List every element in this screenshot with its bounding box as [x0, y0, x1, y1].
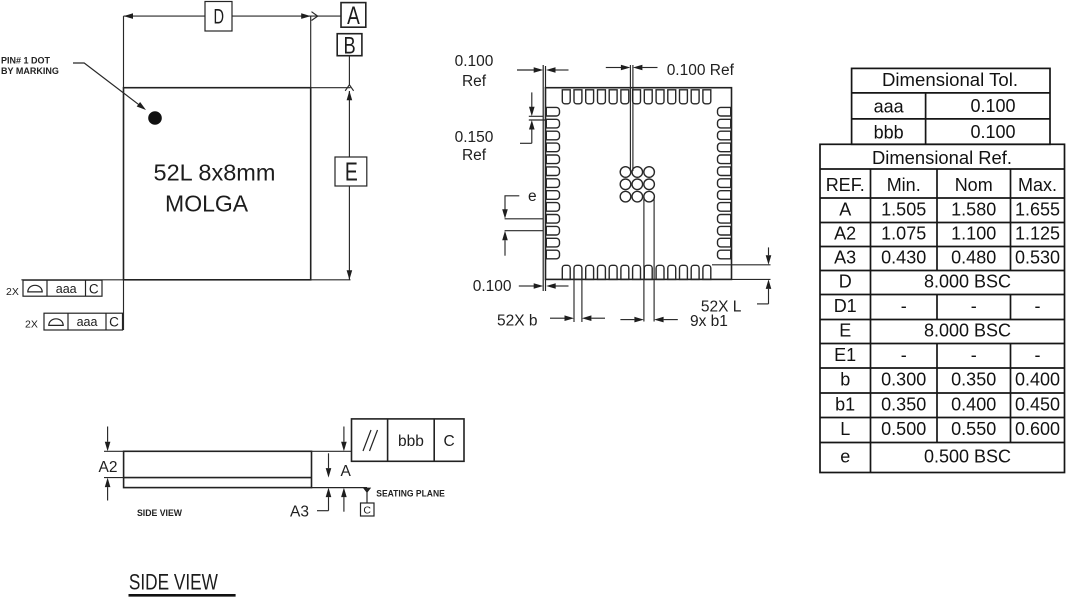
- svg-text:SIDE VIEW: SIDE VIEW: [129, 570, 218, 595]
- svg-text:MOLGA: MOLGA: [165, 190, 249, 216]
- svg-text:0.400: 0.400: [1015, 370, 1060, 390]
- svg-text:D: D: [214, 3, 225, 28]
- svg-text:0.350: 0.350: [951, 370, 996, 390]
- svg-text:Max.: Max.: [1018, 175, 1057, 195]
- svg-text:REF.: REF.: [826, 175, 865, 195]
- svg-text:C: C: [443, 433, 454, 450]
- svg-text:0.450: 0.450: [1015, 394, 1060, 414]
- svg-text:C: C: [109, 315, 119, 330]
- svg-text:A: A: [839, 199, 851, 219]
- svg-text:-: -: [1035, 345, 1041, 365]
- svg-text:9x b1: 9x b1: [690, 313, 728, 330]
- svg-text:A2: A2: [834, 224, 856, 244]
- svg-text:SIDE VIEW: SIDE VIEW: [137, 508, 182, 518]
- svg-text:0.600: 0.600: [1015, 419, 1060, 439]
- svg-text:A3: A3: [290, 504, 309, 521]
- svg-text:C: C: [363, 505, 371, 517]
- svg-text:B: B: [344, 32, 356, 59]
- svg-text:1.580: 1.580: [951, 199, 996, 219]
- svg-text:SEATING PLANE: SEATING PLANE: [376, 489, 445, 499]
- svg-text:0.100: 0.100: [473, 278, 512, 295]
- svg-text:bbb: bbb: [874, 122, 904, 142]
- svg-text:0.100: 0.100: [970, 96, 1015, 116]
- svg-text:bbb: bbb: [398, 433, 424, 450]
- svg-text:aaa: aaa: [874, 96, 905, 116]
- svg-text:D1: D1: [834, 296, 857, 316]
- svg-text:-: -: [901, 345, 907, 365]
- svg-text:A3: A3: [834, 248, 856, 268]
- svg-text:2X: 2X: [6, 286, 19, 298]
- svg-text:0.430: 0.430: [881, 248, 926, 268]
- svg-text:A: A: [347, 1, 360, 29]
- svg-text:-: -: [1035, 296, 1041, 316]
- svg-text:A: A: [341, 463, 352, 480]
- svg-text:1.655: 1.655: [1015, 199, 1060, 219]
- svg-text:PIN# 1 DOT: PIN# 1 DOT: [1, 56, 51, 66]
- svg-text:A2: A2: [99, 459, 118, 476]
- svg-text:Dimensional Ref.: Dimensional Ref.: [872, 148, 1012, 168]
- svg-text:0.530: 0.530: [1015, 248, 1060, 268]
- svg-text:52X L: 52X L: [701, 299, 742, 316]
- svg-text:52X b: 52X b: [497, 313, 538, 330]
- svg-text:b1: b1: [835, 394, 855, 414]
- svg-text:BY MARKING: BY MARKING: [1, 66, 59, 76]
- svg-text:8.000 BSC: 8.000 BSC: [924, 272, 1011, 292]
- svg-text:e: e: [840, 447, 850, 467]
- svg-text:aaa: aaa: [56, 282, 77, 296]
- svg-text:E: E: [839, 321, 851, 341]
- svg-text:aaa: aaa: [77, 315, 98, 329]
- svg-text:0.100: 0.100: [455, 53, 494, 70]
- svg-text:C: C: [89, 281, 99, 296]
- svg-text:Nom: Nom: [955, 175, 993, 195]
- svg-text:0.480: 0.480: [951, 248, 996, 268]
- svg-text:Ref: Ref: [462, 73, 487, 90]
- svg-text:0.500: 0.500: [881, 419, 926, 439]
- svg-text:E: E: [345, 158, 358, 186]
- svg-text:1.100: 1.100: [951, 224, 996, 244]
- svg-text:Min.: Min.: [887, 175, 921, 195]
- svg-text:E1: E1: [834, 345, 856, 365]
- svg-text:-: -: [901, 296, 907, 316]
- svg-text:0.100: 0.100: [970, 122, 1015, 142]
- svg-text:e: e: [528, 188, 537, 205]
- svg-text:1.125: 1.125: [1015, 224, 1060, 244]
- svg-text:Ref: Ref: [462, 147, 487, 164]
- svg-text:b: b: [840, 370, 850, 390]
- svg-text:0.150: 0.150: [455, 129, 494, 146]
- svg-text:-: -: [971, 345, 977, 365]
- svg-text:L: L: [840, 419, 850, 439]
- svg-text:0.350: 0.350: [881, 394, 926, 414]
- svg-text:1.505: 1.505: [881, 199, 926, 219]
- svg-text:0.500 BSC: 0.500 BSC: [924, 447, 1011, 467]
- svg-text:D: D: [839, 272, 852, 292]
- svg-text:1.075: 1.075: [881, 224, 926, 244]
- svg-text:52L 8x8mm: 52L 8x8mm: [154, 160, 276, 186]
- svg-text:0.100 Ref: 0.100 Ref: [667, 62, 735, 79]
- svg-text:Dimensional Tol.: Dimensional Tol.: [882, 70, 1018, 90]
- svg-text:8.000 BSC: 8.000 BSC: [924, 321, 1011, 341]
- svg-text:-: -: [971, 296, 977, 316]
- svg-text:0.300: 0.300: [881, 370, 926, 390]
- svg-text:2X: 2X: [25, 319, 38, 331]
- svg-text:0.550: 0.550: [951, 419, 996, 439]
- svg-text:0.400: 0.400: [951, 394, 996, 414]
